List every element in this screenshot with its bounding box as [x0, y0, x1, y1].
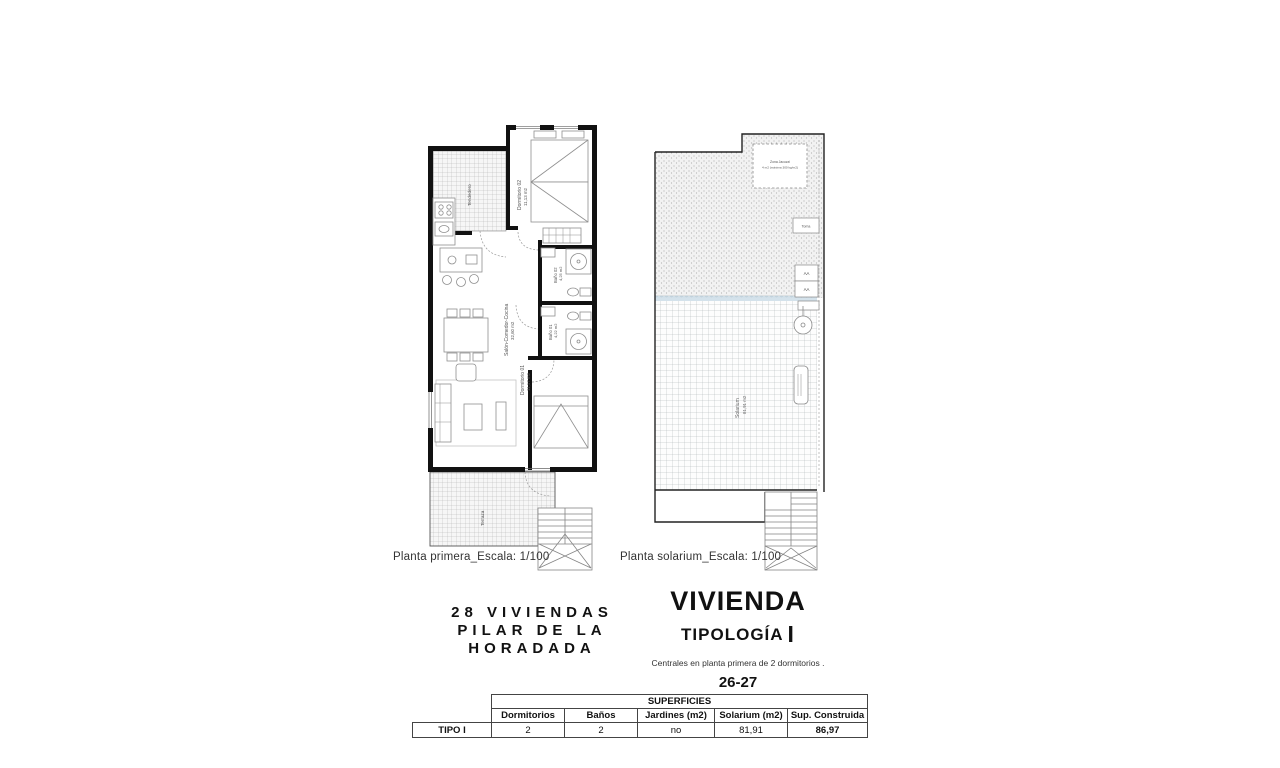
label-dormitorio01-area: 11,17 m2 — [526, 372, 531, 391]
col-header-jardines: Jardines (m2) — [638, 709, 715, 723]
value-dormitorios: 2 — [492, 723, 565, 738]
label-tendedero: Tendedero — [467, 184, 472, 206]
table-row-tipo-i: TIPO I 2 2 no 81,91 86,97 — [413, 723, 868, 738]
label-solarium-area: 81,91 m2 — [742, 395, 747, 414]
project-line3: HORADADA — [443, 640, 621, 658]
typology-subtitle: Centrales en planta primera de 2 dormito… — [633, 658, 843, 668]
caption-planta-primera: Planta primera_Escala: 1/100 — [393, 551, 549, 563]
label-zona-line1: Zona Jacuzzi — [770, 160, 790, 164]
jacuzzi-zone: Zona Jacuzzi 4 m2 (máxima 300 kg/m2) — [753, 144, 807, 188]
typology-number: I — [788, 621, 795, 647]
tiled-area — [655, 296, 817, 490]
col-header-sup-construida: Sup. Construida — [788, 709, 868, 723]
unit-numbers: 26-27 — [633, 674, 843, 691]
label-zona-line2: 4 m2 (máxima 300 kg/m2) — [762, 166, 798, 170]
dwelling-block: VIVIENDA TIPOLOGÍAI Centrales en planta … — [633, 586, 843, 691]
label-dormitorio02-area: 11,13 m2 — [523, 187, 528, 206]
label-terraza: Terraza — [480, 510, 485, 526]
label-aa2: AA — [804, 287, 810, 292]
value-solarium: 81,91 — [715, 723, 788, 738]
col-header-banos: Baños — [565, 709, 638, 723]
typology-title: TIPOLOGÍAI — [633, 621, 843, 648]
value-sup-construida: 86,97 — [788, 723, 868, 738]
plan-solarium-drawing: Zona Jacuzzi 4 m2 (máxima 300 kg/m2) Tom… — [648, 130, 833, 575]
terraza-area — [430, 472, 555, 546]
label-aa1: AA — [804, 271, 810, 276]
superficies-table: SUPERFICIES Dormitorios Baños Jardines (… — [412, 694, 868, 738]
project-line1: 28 VIVIENDAS — [443, 604, 621, 622]
project-title: 28 VIVIENDAS PILAR DE LA HORADADA — [443, 604, 621, 658]
caption-planta-solarium: Planta solarium_Escala: 1/100 — [620, 551, 781, 563]
label-toma: Toma — [802, 225, 811, 229]
col-header-solarium: Solarium (m2) — [715, 709, 788, 723]
table-cell-blank — [413, 695, 492, 709]
label-bano02-area: 4,25 m2 — [558, 266, 563, 281]
plan-primera-drawing: Tendedero Dormitorio 02 11,13 m2 Salón-C… — [420, 118, 615, 583]
table-group-header: SUPERFICIES — [492, 695, 868, 709]
col-header-dormitorios: Dormitorios — [492, 709, 565, 723]
table-cell-blank — [413, 709, 492, 723]
dwelling-title: VIVIENDA — [633, 586, 843, 617]
table-row-group-header: SUPERFICIES — [413, 695, 868, 709]
value-jardines: no — [638, 723, 715, 738]
label-solarium: Solarium — [735, 398, 741, 418]
sheet: Tendedero Dormitorio 02 11,13 m2 Salón-C… — [0, 0, 1280, 768]
value-banos: 2 — [565, 723, 638, 738]
label-bano01-area: 4,22 m2 — [553, 323, 558, 338]
table-row-col-headers: Dormitorios Baños Jardines (m2) Solarium… — [413, 709, 868, 723]
door-swings — [480, 231, 554, 496]
label-salon-area: 32,60 m2 — [510, 321, 515, 340]
row-label-tipo-i: TIPO I — [413, 723, 492, 738]
typology-text: TIPOLOGÍA — [681, 625, 784, 644]
project-line2: PILAR DE LA — [443, 622, 621, 640]
